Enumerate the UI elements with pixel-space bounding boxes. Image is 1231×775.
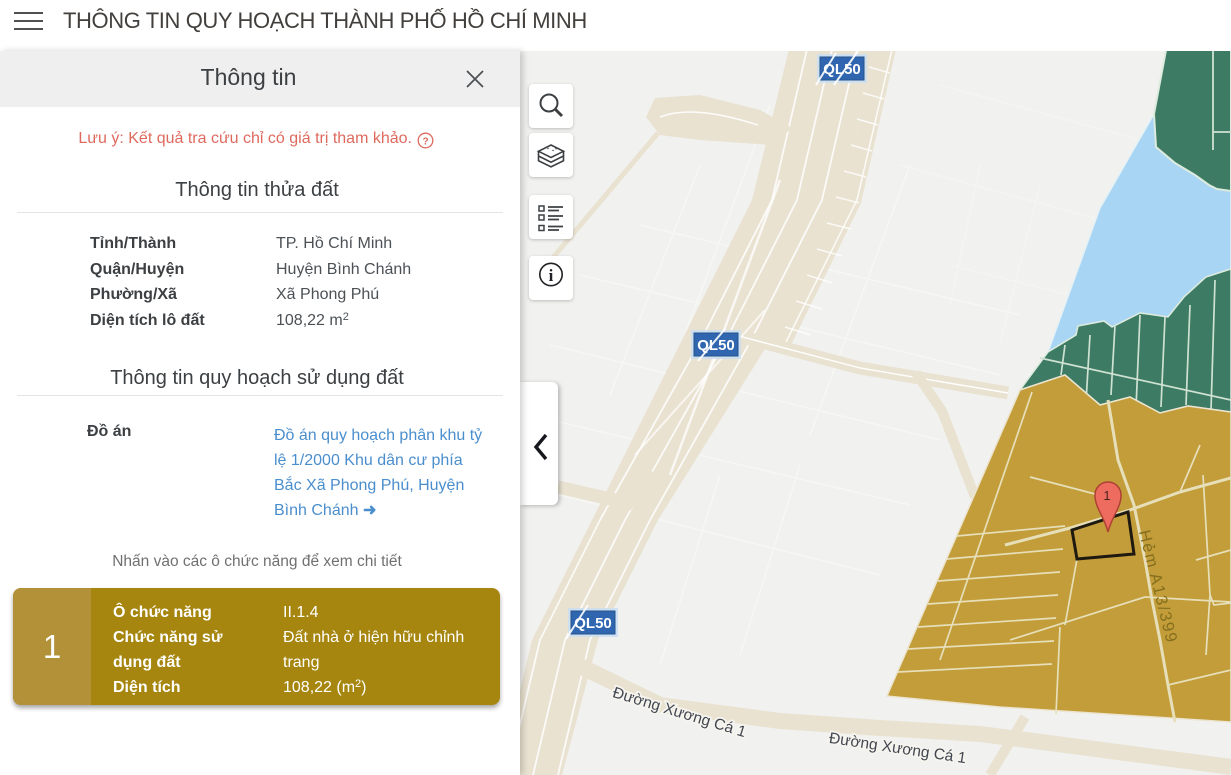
- svg-text:?: ?: [422, 137, 428, 148]
- svg-text:i: i: [549, 266, 554, 285]
- svg-text:1: 1: [1104, 489, 1111, 503]
